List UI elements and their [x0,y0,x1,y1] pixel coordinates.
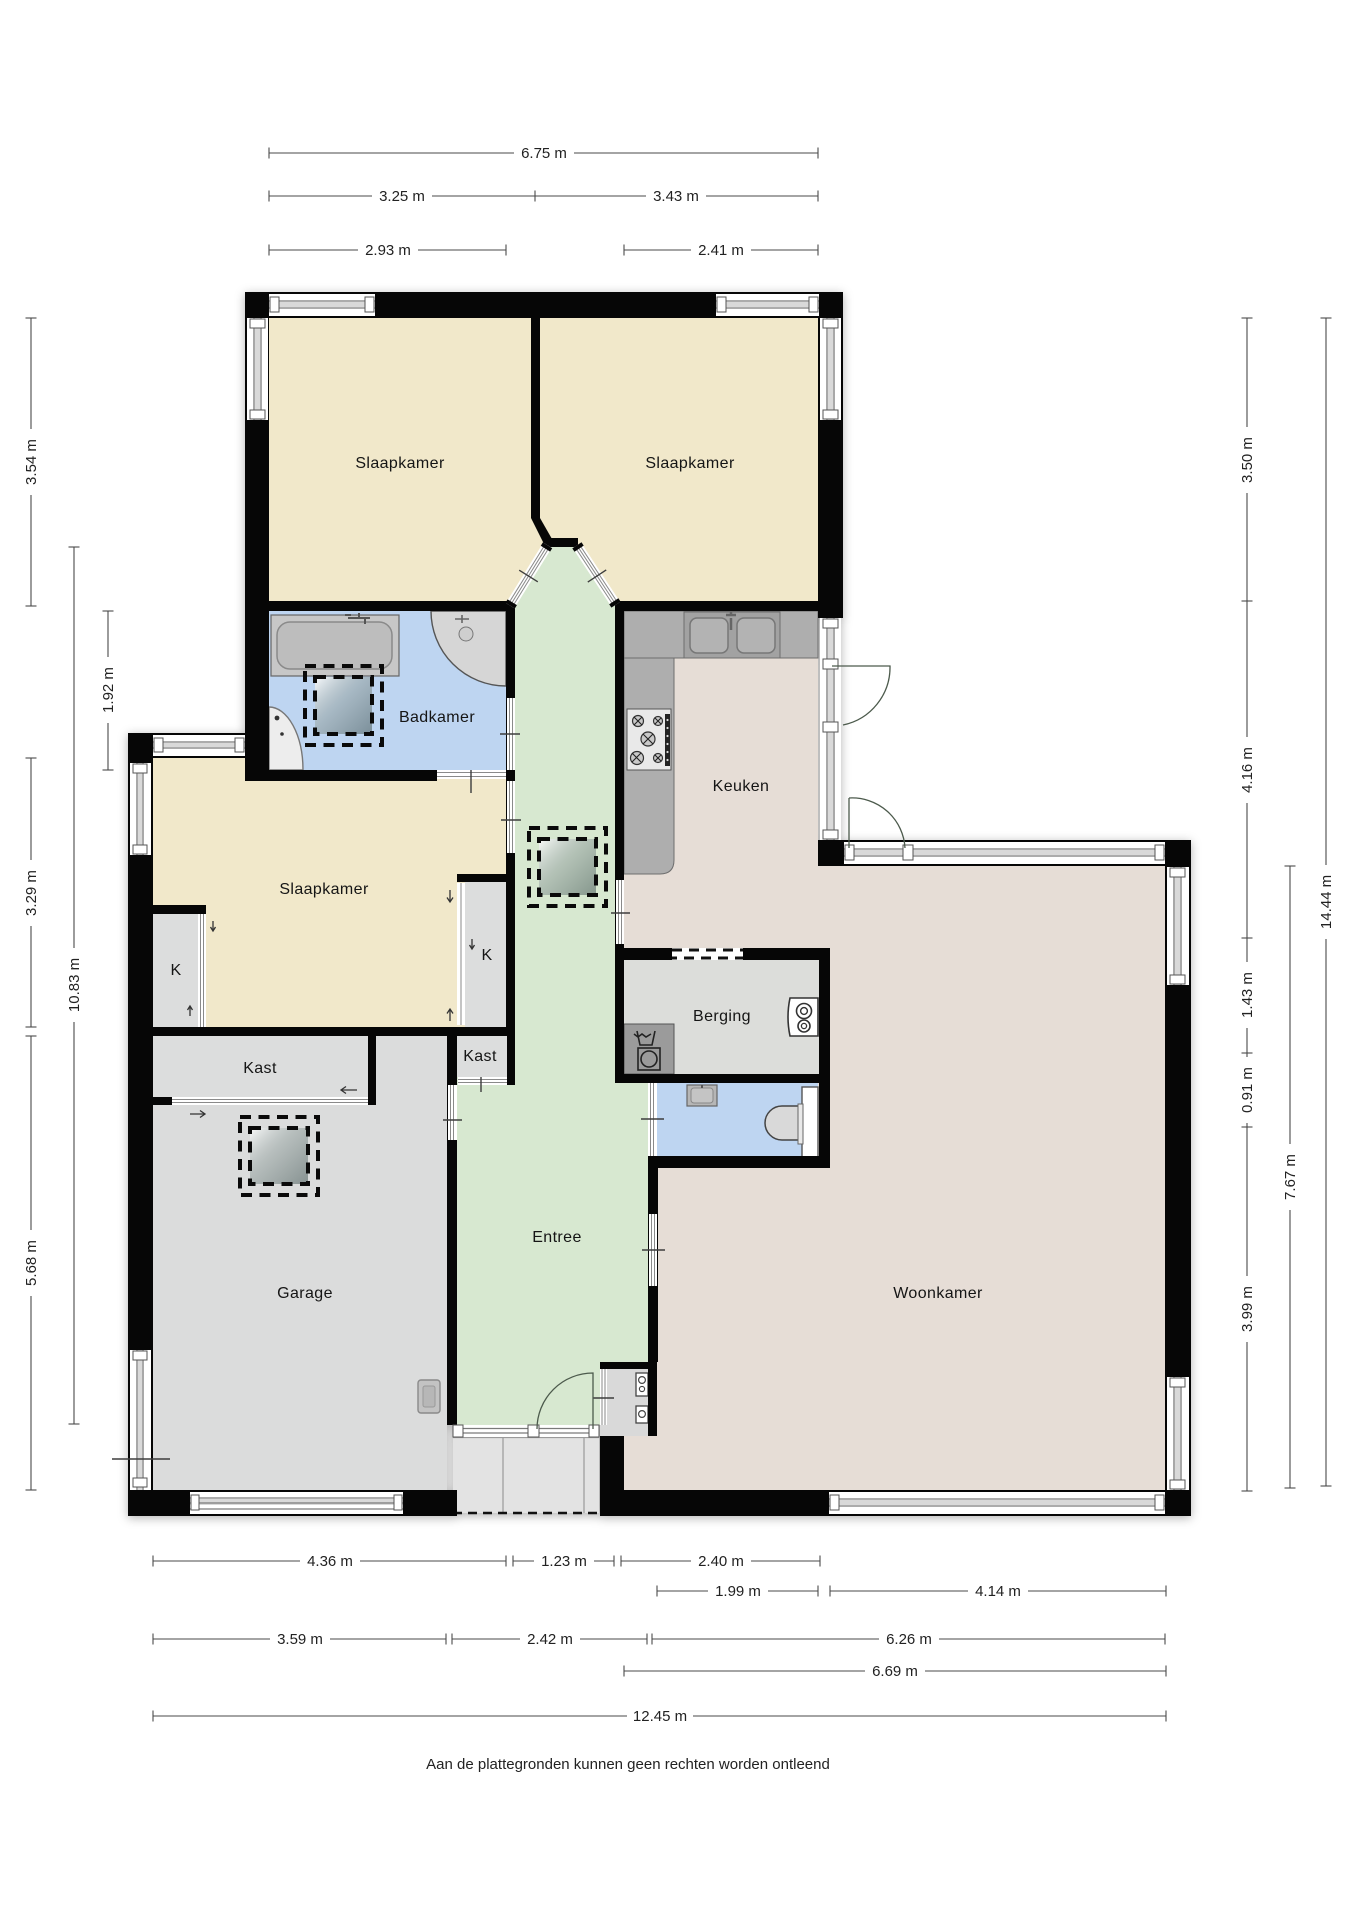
svg-text:4.36 m: 4.36 m [307,1553,353,1570]
svg-text:Entree: Entree [532,1229,582,1246]
svg-text:Berging: Berging [693,1008,751,1025]
svg-text:6.69 m: 6.69 m [872,1663,918,1680]
svg-text:3.99 m: 3.99 m [1239,1286,1256,1332]
svg-text:6.75 m: 6.75 m [521,145,567,162]
svg-text:3.29 m: 3.29 m [23,870,40,916]
svg-text:Slaapkamer: Slaapkamer [355,455,445,472]
svg-text:1.99 m: 1.99 m [715,1583,761,1600]
svg-text:7.67 m: 7.67 m [1282,1154,1299,1200]
svg-text:Garage: Garage [277,1285,333,1302]
svg-text:6.26 m: 6.26 m [886,1631,932,1648]
svg-text:2.93 m: 2.93 m [365,242,411,259]
svg-text:2.40 m: 2.40 m [698,1553,744,1570]
svg-text:Badkamer: Badkamer [399,709,475,726]
svg-text:10.83 m: 10.83 m [66,958,83,1012]
svg-text:Slaapkamer: Slaapkamer [279,881,369,898]
svg-text:14.44 m: 14.44 m [1318,875,1335,929]
svg-text:3.59 m: 3.59 m [277,1631,323,1648]
svg-text:2.42 m: 2.42 m [527,1631,573,1648]
svg-text:4.14 m: 4.14 m [975,1583,1021,1600]
svg-text:Aan de plattegronden kunnen ge: Aan de plattegronden kunnen geen rechten… [426,1756,830,1773]
svg-text:4.16 m: 4.16 m [1239,747,1256,793]
svg-text:Keuken: Keuken [713,778,770,795]
svg-text:Slaapkamer: Slaapkamer [645,455,735,472]
svg-text:3.50 m: 3.50 m [1239,437,1256,483]
svg-text:1.92 m: 1.92 m [100,667,117,713]
svg-text:Kast: Kast [463,1048,497,1065]
svg-text:3.43 m: 3.43 m [653,188,699,205]
svg-text:Woonkamer: Woonkamer [893,1285,983,1302]
svg-text:K: K [481,947,492,964]
svg-text:K: K [170,962,181,979]
svg-text:12.45 m: 12.45 m [633,1708,687,1725]
svg-text:1.43 m: 1.43 m [1239,972,1256,1018]
svg-text:5.68 m: 5.68 m [23,1240,40,1286]
svg-text:1.23 m: 1.23 m [541,1553,587,1570]
svg-text:2.41 m: 2.41 m [698,242,744,259]
svg-text:0.91 m: 0.91 m [1239,1067,1256,1113]
svg-text:Kast: Kast [243,1060,277,1077]
svg-text:3.25 m: 3.25 m [379,188,425,205]
svg-text:3.54 m: 3.54 m [23,439,40,485]
